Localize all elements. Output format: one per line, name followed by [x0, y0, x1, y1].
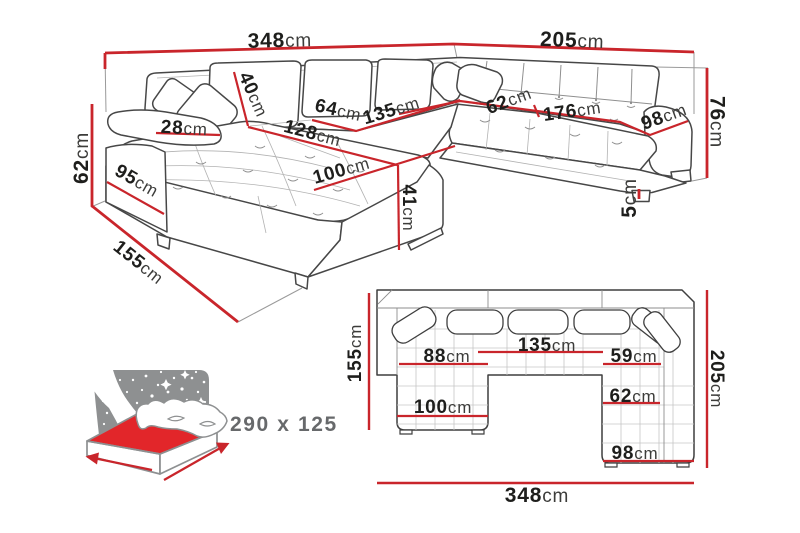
svg-text:62cm: 62cm: [70, 132, 93, 184]
svg-text:28cm: 28cm: [160, 117, 208, 140]
svg-text:88cm: 88cm: [424, 346, 471, 367]
svg-text:155cm: 155cm: [345, 324, 366, 382]
svg-text:348cm: 348cm: [505, 484, 569, 507]
svg-text:205cm: 205cm: [540, 28, 605, 53]
svg-text:290 x 125: 290 x 125: [230, 413, 338, 436]
svg-text:100cm: 100cm: [414, 397, 472, 418]
svg-text:41cm: 41cm: [398, 185, 419, 232]
svg-text:5cm: 5cm: [618, 178, 641, 217]
svg-text:76cm: 76cm: [706, 96, 729, 148]
svg-text:135cm: 135cm: [518, 335, 576, 356]
svg-text:98cm: 98cm: [612, 443, 659, 464]
svg-text:348cm: 348cm: [247, 28, 312, 53]
svg-text:59cm: 59cm: [611, 346, 658, 367]
svg-text:205cm: 205cm: [706, 350, 727, 408]
svg-text:62cm: 62cm: [610, 386, 657, 407]
